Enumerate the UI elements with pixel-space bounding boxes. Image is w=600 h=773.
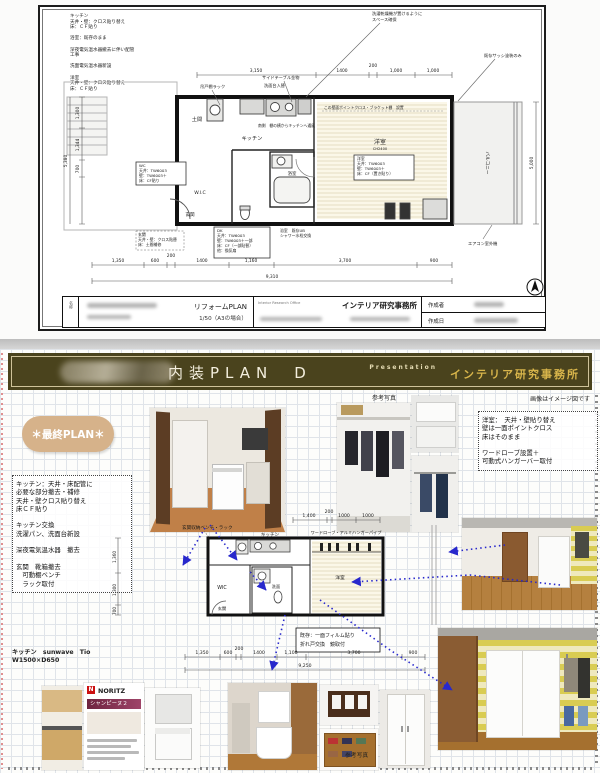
dim: 1,100 bbox=[284, 650, 297, 656]
header-band: 内装PLAN D Presentation インテリア研究事務所 bbox=[8, 353, 592, 390]
scope-line: 床はそのまま bbox=[482, 433, 594, 441]
office-name: インテリア研究事務所 bbox=[342, 300, 417, 311]
kitchen-product-note: キッチン sunwave Tio W1500×D650 bbox=[12, 649, 90, 665]
callout-washstand: 洗面台入替 bbox=[264, 82, 286, 89]
scope-line: 必要な部分撤去・補修 bbox=[16, 488, 128, 496]
shoes bbox=[328, 738, 338, 744]
dim: 700 bbox=[112, 607, 117, 615]
room-senmen: 洗面 bbox=[272, 583, 280, 590]
dim: 3,700 bbox=[339, 258, 352, 264]
plan-dims-top: 1,400 200 1000 1000 bbox=[293, 509, 380, 523]
scope-line: 天井・壁クロス貼り替え bbox=[16, 497, 128, 505]
dim: 1400 bbox=[336, 68, 347, 74]
callout-sash: 既存サッシ塗装のみ bbox=[484, 52, 522, 59]
drawing-sheet: キッチン 天井・壁：クロス貼り替え 床：ＣＦ貼り 浴室：既存のまま 深夜電気温水… bbox=[38, 5, 546, 331]
scope-box-right: 洋室： 天井・壁貼り替え 壁は一面ポイントクロス 床はそのまま ワードローブ設置… bbox=[478, 411, 598, 471]
title-block-author-cell: 作成者 作成日 bbox=[422, 297, 545, 327]
dim-total: 9,310 bbox=[266, 274, 279, 280]
callout-genkan-rack: 玄関収納ベンチ・ラック bbox=[182, 524, 233, 531]
title-block: 名称 リフォームPLAN 1/50（A3の場合） Interior Resear… bbox=[62, 296, 546, 328]
spec-line: 床：土間補修 bbox=[138, 242, 161, 247]
callout-vent: 南側 棚の横からキッチンへ通風 bbox=[258, 123, 315, 128]
room-genkan: 玄関 bbox=[218, 605, 226, 612]
dim: 1,360 bbox=[112, 551, 117, 563]
dim: 1,000 bbox=[390, 68, 403, 74]
photo-kitchen bbox=[42, 686, 82, 770]
dim: 600 bbox=[151, 258, 160, 264]
spec-bar bbox=[87, 745, 131, 748]
presentation-floor-plan: 玄関収納ベンチ・ラック キッチン ワードローブ・アルミハンガーパイプ 1,400… bbox=[100, 505, 440, 705]
dim: 600 bbox=[224, 650, 233, 656]
white-wardrobe bbox=[486, 650, 560, 738]
plan-scale: 1/50（A3の場合） bbox=[199, 314, 247, 322]
hanging-clothes bbox=[578, 658, 590, 698]
spec-bar bbox=[87, 739, 137, 742]
left-edge-ruler bbox=[1, 353, 3, 769]
cabinet bbox=[416, 402, 456, 422]
spec-line: 床：CF貼り bbox=[139, 178, 160, 183]
dim: 1400 bbox=[196, 258, 207, 264]
floorplan-document: キッチン 天井・壁：クロス貼り替え 床：ＣＦ貼り 浴室：既存のまま 深夜電気温水… bbox=[0, 0, 600, 340]
dim: 900 bbox=[409, 650, 418, 656]
shelf bbox=[337, 417, 410, 420]
wardrobe-seam bbox=[522, 650, 523, 736]
note-line: 既存：一面フィルム貼り bbox=[300, 632, 355, 639]
dim: 200 bbox=[167, 253, 176, 259]
corridor-outline bbox=[64, 82, 177, 230]
reference-photo-label-bottom: 参考写真 bbox=[345, 750, 368, 759]
dim: 1,350 bbox=[112, 258, 125, 264]
upper-cabinet bbox=[242, 428, 268, 450]
entry-door bbox=[502, 532, 528, 582]
callout-aircon: エアコン室外機 bbox=[468, 240, 498, 247]
vanity-counter bbox=[155, 728, 190, 734]
plan-dims-left: 1,360 1,300 700 bbox=[112, 538, 121, 615]
open-door bbox=[172, 420, 208, 508]
hanging-clothes bbox=[361, 431, 373, 471]
dim: 1,000 bbox=[427, 68, 440, 74]
spec-line: シャワー水栓交換 bbox=[280, 233, 311, 238]
dim: 1400 bbox=[253, 650, 265, 656]
hanging-clothes bbox=[376, 431, 389, 477]
page-title: 内装PLAN D bbox=[168, 362, 312, 383]
callout-rack: 吊戸棚ラック bbox=[200, 83, 225, 90]
vanity-base bbox=[256, 727, 292, 759]
north-arrow-icon bbox=[527, 279, 543, 295]
dim: 200 bbox=[235, 646, 244, 652]
screenshot-root: キッチン 天井・壁：クロス貼り替え 床：ＣＦ貼り 浴室：既存のまま 深夜電気温水… bbox=[0, 0, 600, 773]
document-separator bbox=[0, 339, 600, 349]
spec-bar bbox=[87, 757, 125, 760]
redacted-client-name bbox=[87, 303, 157, 308]
shoes bbox=[342, 738, 352, 744]
handle bbox=[401, 726, 403, 732]
dim-total: 5,380 bbox=[63, 155, 69, 168]
hanging-clothes bbox=[564, 658, 578, 692]
scope-line bbox=[482, 441, 594, 449]
spec-line: 床：CF（置き貼り） bbox=[357, 171, 393, 176]
title-block-office-cell: Interior Research Office インテリア研究事務所 bbox=[254, 297, 422, 327]
spec-bar bbox=[87, 751, 139, 754]
divider bbox=[422, 312, 545, 313]
room-doma: 土間 bbox=[192, 115, 202, 123]
room-balcony: バルコニー bbox=[484, 152, 490, 175]
bath-doorway bbox=[232, 703, 250, 753]
hanging-clothes bbox=[392, 431, 404, 469]
kitchen-product-line: W1500×D650 bbox=[12, 657, 90, 665]
image-disclaimer: 画像はイメージ図です bbox=[530, 394, 590, 403]
shoes bbox=[328, 751, 338, 757]
dim: 1000 bbox=[338, 513, 350, 519]
spec-line: 他：換気扇 bbox=[217, 248, 237, 253]
noritz-product-photo bbox=[87, 712, 141, 734]
handle bbox=[407, 726, 409, 732]
dim: 3,150 bbox=[250, 68, 263, 74]
room-yoshitsu: 洋室 bbox=[335, 574, 345, 581]
redacted-author bbox=[474, 302, 504, 307]
dim: 900 bbox=[430, 258, 439, 264]
towel bbox=[564, 706, 574, 726]
shoes bbox=[356, 738, 366, 744]
office-name-en: Interior Research Office bbox=[258, 301, 300, 305]
floor-plan-drawing: 土間 キッチン 浴室 W.I.C 玄関 洋室 CH2400 バルコニー 吊戸棚ラ… bbox=[40, 7, 548, 333]
redacted-date bbox=[474, 318, 518, 323]
base-cabinets bbox=[42, 730, 82, 760]
redacted-logo bbox=[60, 361, 175, 383]
callout-wardrobe: ワードローブ・アルミハンガーパイプ bbox=[311, 529, 383, 536]
title-block-name-cell: 名称 bbox=[63, 297, 79, 327]
room-genkan: 玄関 bbox=[185, 211, 195, 218]
redacted-client-name bbox=[87, 315, 131, 319]
room-ceiling-height: CH2400 bbox=[373, 147, 388, 151]
dim: 200 bbox=[369, 63, 378, 69]
dim: 1000 bbox=[362, 513, 374, 519]
name-label: 名称 bbox=[68, 301, 74, 309]
dim: 1,160 bbox=[245, 258, 258, 264]
dim: 5,000 bbox=[529, 157, 535, 170]
hanging-clothes bbox=[345, 431, 358, 465]
photo-room-render-wide bbox=[462, 518, 597, 610]
dim: 1,300 bbox=[75, 107, 81, 120]
note-line: 折れ戸交換 鏡取付 bbox=[300, 641, 345, 648]
scope-line: 可動式ハンガーバー取付 bbox=[482, 457, 594, 465]
room-bath: 浴室 bbox=[288, 170, 297, 177]
room-wic: W.I.C bbox=[194, 190, 206, 196]
presentation-document: 内装PLAN D Presentation インテリア研究事務所 画像はイメージ… bbox=[0, 349, 600, 773]
dim: 1,344 bbox=[75, 139, 81, 152]
callout-laundry1: 洗濯乾燥機が置けるように bbox=[372, 10, 422, 17]
dim: 1,300 bbox=[112, 584, 117, 596]
plan-title: リフォームPLAN bbox=[194, 302, 247, 312]
redacted-phone bbox=[350, 317, 410, 321]
room-wic: WIC bbox=[217, 585, 227, 591]
hanging-clothes bbox=[575, 532, 589, 558]
storage-box bbox=[341, 405, 363, 415]
towel bbox=[578, 706, 588, 726]
washer-lid bbox=[212, 468, 242, 472]
photo-white-cabinets bbox=[412, 396, 458, 452]
final-plan-badge-label: ＊最終PLAN＊ bbox=[31, 427, 104, 442]
presentation-tag: Presentation bbox=[369, 364, 437, 371]
cabinet bbox=[416, 426, 456, 448]
upper-cabinets bbox=[42, 690, 82, 712]
room-kitchen: キッチン bbox=[242, 135, 263, 142]
dim: 1,350 bbox=[195, 650, 208, 656]
date-label: 作成日 bbox=[428, 317, 444, 325]
noritz-logo-icon: N bbox=[87, 686, 95, 694]
office-name: インテリア研究事務所 bbox=[450, 366, 580, 382]
reference-photo-label-top: 参考写真 bbox=[372, 393, 396, 402]
plan-note-box: 既存：一面フィルム貼り 折れ戸交換 鏡取付 bbox=[296, 628, 380, 652]
final-plan-badge: ＊最終PLAN＊ bbox=[22, 416, 114, 452]
dim: 200 bbox=[325, 509, 334, 515]
dim: 1,400 bbox=[302, 513, 315, 519]
dim: 3,700 bbox=[347, 650, 360, 656]
callout-accent: この壁面ポイントクロス・ブラケット棚 設置 bbox=[324, 105, 404, 110]
title-block-project-cell: リフォームPLAN 1/50（A3の場合） bbox=[79, 297, 254, 327]
counter bbox=[246, 462, 270, 504]
photo-room-render-close bbox=[438, 628, 597, 750]
redacted-address bbox=[260, 317, 322, 321]
kitchen-product-line: キッチン sunwave Tio bbox=[12, 649, 90, 657]
author-label: 作成者 bbox=[428, 301, 444, 309]
wardrobe bbox=[538, 536, 570, 588]
callout-laundry2: スペース確保 bbox=[372, 16, 397, 23]
dim-total: 9,250 bbox=[298, 663, 311, 669]
scope-line: 壁は一面ポイントクロス bbox=[482, 424, 594, 432]
room-yoshitsu: 洋室 bbox=[374, 138, 386, 146]
dim: 700 bbox=[75, 165, 81, 174]
brown-cabinet bbox=[438, 636, 478, 742]
